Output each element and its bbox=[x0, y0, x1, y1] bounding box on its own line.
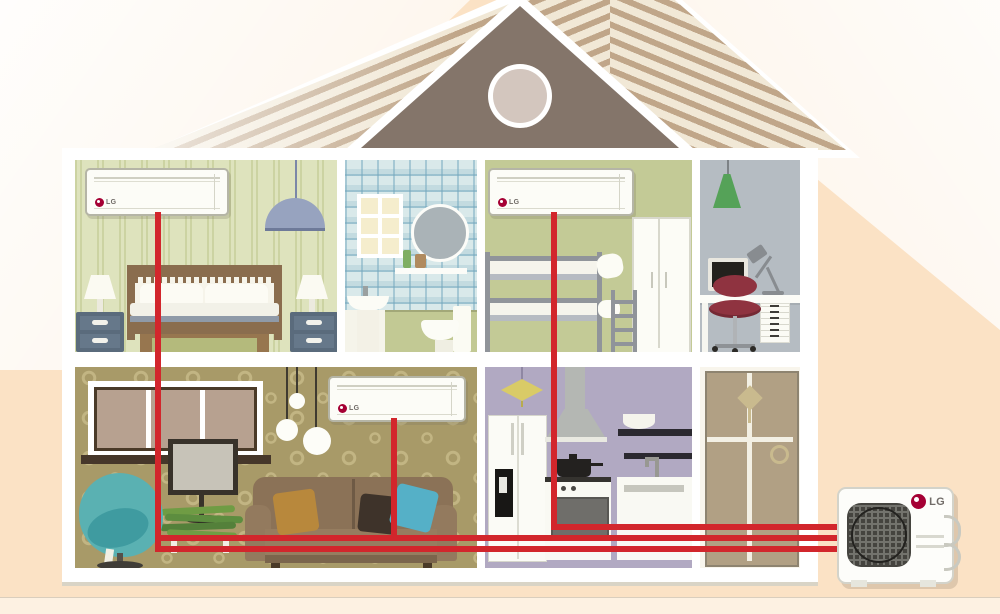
fridge-handle bbox=[521, 423, 524, 455]
door-knob bbox=[770, 445, 789, 464]
pipe-run-bottom bbox=[155, 546, 847, 552]
room-bathroom bbox=[345, 160, 477, 352]
lg-logo: LG bbox=[95, 198, 116, 207]
egg-chair-base bbox=[97, 561, 143, 568]
pipe-bedroom-drop bbox=[155, 212, 161, 552]
table-lamp-shade-left bbox=[84, 275, 116, 299]
ladder-rung bbox=[611, 328, 637, 332]
bowl bbox=[623, 414, 655, 429]
range-hood-chimney bbox=[565, 367, 585, 411]
oven-door bbox=[551, 497, 609, 537]
fridge-handle bbox=[511, 423, 514, 455]
office-chair-stem bbox=[733, 316, 737, 344]
lg-logo: LG bbox=[911, 494, 945, 509]
pendant-drop bbox=[521, 401, 523, 407]
pot-handle bbox=[591, 463, 603, 466]
fan-ring bbox=[851, 507, 907, 563]
ac-panel-divider bbox=[451, 382, 452, 416]
room-kids-bunk: LG bbox=[485, 160, 692, 352]
fan-grille bbox=[847, 503, 911, 567]
sofa-leg bbox=[271, 563, 280, 568]
bed-headboard-rail bbox=[127, 265, 282, 277]
bottle bbox=[403, 250, 411, 268]
pipe-living-drop bbox=[391, 418, 397, 541]
ac-vent-line bbox=[497, 177, 625, 179]
pendant-stem bbox=[286, 367, 288, 423]
wall-shelf bbox=[618, 429, 692, 436]
ac-vent-line bbox=[497, 181, 625, 182]
lg-logo-text: LG bbox=[106, 199, 116, 206]
side-vent-line bbox=[916, 535, 944, 538]
ladder-rung bbox=[611, 314, 637, 318]
unit-foot bbox=[851, 580, 867, 587]
door-ornament-tail bbox=[748, 405, 751, 423]
bunk-blanket-top bbox=[490, 274, 597, 280]
caster-wheel bbox=[712, 346, 718, 352]
wardrobe-handle bbox=[651, 272, 653, 288]
lg-logo-text: LG bbox=[929, 496, 945, 508]
indoor-ac-unit-bedroom: LG bbox=[85, 168, 229, 216]
shelf bbox=[395, 268, 467, 274]
diamond-pendant-lamp bbox=[501, 379, 543, 401]
pendant-stem bbox=[727, 160, 729, 176]
dispenser-panel bbox=[499, 477, 507, 493]
sofa-leg bbox=[423, 563, 432, 568]
ac-vent-line bbox=[337, 389, 458, 390]
sink-faucet bbox=[363, 286, 368, 296]
toilet-base bbox=[435, 340, 453, 352]
ac-vent-line bbox=[94, 181, 220, 182]
stove-knob bbox=[571, 486, 576, 491]
tv-screen bbox=[173, 444, 233, 490]
pipe-run-top bbox=[551, 524, 847, 530]
house-ac-diagram: LG bbox=[0, 0, 1000, 614]
pillow bbox=[595, 252, 625, 280]
indoor-ac-unit-kids-room: LG bbox=[488, 168, 634, 216]
sink-pedestal bbox=[357, 310, 379, 352]
sofa-base bbox=[265, 555, 437, 563]
lg-logo: LG bbox=[498, 198, 519, 207]
jar bbox=[415, 254, 426, 268]
wardrobe-door-split bbox=[658, 219, 660, 348]
ac-vent-line bbox=[94, 208, 220, 209]
lg-logo-mark-icon bbox=[338, 404, 347, 413]
wardrobe bbox=[632, 217, 691, 352]
ac-vent-line bbox=[337, 385, 458, 387]
wardrobe-handle bbox=[665, 272, 667, 288]
sofa-cushion-split bbox=[352, 479, 355, 529]
desk-leg bbox=[702, 303, 708, 352]
caster-wheel bbox=[732, 348, 738, 352]
lg-logo-mark-icon bbox=[911, 494, 926, 509]
drawer-handle bbox=[306, 320, 322, 325]
throw-pillow-mustard bbox=[272, 488, 319, 535]
ground-strip bbox=[0, 597, 1000, 614]
outdoor-ac-unit: LG bbox=[837, 487, 954, 584]
cooking-pot bbox=[557, 459, 591, 477]
ac-vent-line bbox=[497, 208, 625, 209]
ac-panel-divider bbox=[214, 174, 215, 210]
ac-panel-divider bbox=[619, 174, 620, 210]
sink-basin bbox=[624, 485, 684, 492]
ladder-rung bbox=[611, 300, 637, 304]
pendant-stem bbox=[296, 367, 298, 395]
dome-pendant-lamp bbox=[265, 198, 325, 231]
bathroom-window bbox=[361, 198, 399, 254]
ac-vent-line bbox=[94, 177, 220, 179]
lg-logo-text: LG bbox=[349, 405, 359, 412]
pipe-run-middle bbox=[155, 535, 847, 541]
room-bedroom: LG bbox=[75, 160, 337, 352]
door-rail bbox=[707, 437, 793, 442]
drawer-handle bbox=[92, 338, 108, 343]
attic-round-window bbox=[493, 69, 547, 123]
bunk-blanket-bottom bbox=[490, 315, 597, 321]
globe-pendant bbox=[276, 419, 298, 441]
cone-pendant-lamp bbox=[713, 174, 741, 208]
table-lamp-stem bbox=[309, 299, 315, 312]
ac-vent-line bbox=[337, 414, 458, 415]
table-lamp-shade-right bbox=[296, 275, 328, 299]
lg-logo-text: LG bbox=[509, 199, 519, 206]
pipe-kids-room-drop bbox=[551, 212, 557, 530]
drawer-handle bbox=[92, 320, 108, 325]
lg-logo: LG bbox=[338, 404, 359, 413]
unit-foot bbox=[920, 580, 936, 587]
bed-blanket bbox=[152, 338, 257, 352]
indoor-ac-unit-living-room: LG bbox=[328, 376, 466, 422]
faucet-riser bbox=[655, 457, 659, 477]
office-chair-back bbox=[713, 275, 757, 297]
bunk-mattress-bottom bbox=[490, 303, 597, 315]
lg-logo-mark-icon bbox=[498, 198, 507, 207]
globe-pendant bbox=[289, 393, 305, 409]
table-lamp-stem bbox=[97, 299, 103, 312]
sink-basin bbox=[347, 296, 389, 310]
stove-knob bbox=[561, 486, 566, 491]
pendant-stem bbox=[295, 160, 297, 200]
caster-wheel bbox=[750, 346, 756, 352]
side-vent-line bbox=[916, 545, 944, 548]
room-office bbox=[700, 160, 800, 352]
globe-pendant bbox=[303, 427, 331, 455]
pendant-stem bbox=[315, 367, 317, 433]
service-pipe-loop bbox=[944, 543, 961, 571]
mattress bbox=[130, 303, 279, 316]
ladder-rung bbox=[611, 342, 637, 346]
lg-logo-mark-icon bbox=[95, 198, 104, 207]
drawer-handle bbox=[306, 338, 322, 343]
drawer-handles bbox=[770, 305, 779, 339]
faucet-tip bbox=[645, 461, 649, 467]
bunk-mattress-top bbox=[490, 261, 597, 274]
house-foundation-line bbox=[62, 582, 818, 586]
